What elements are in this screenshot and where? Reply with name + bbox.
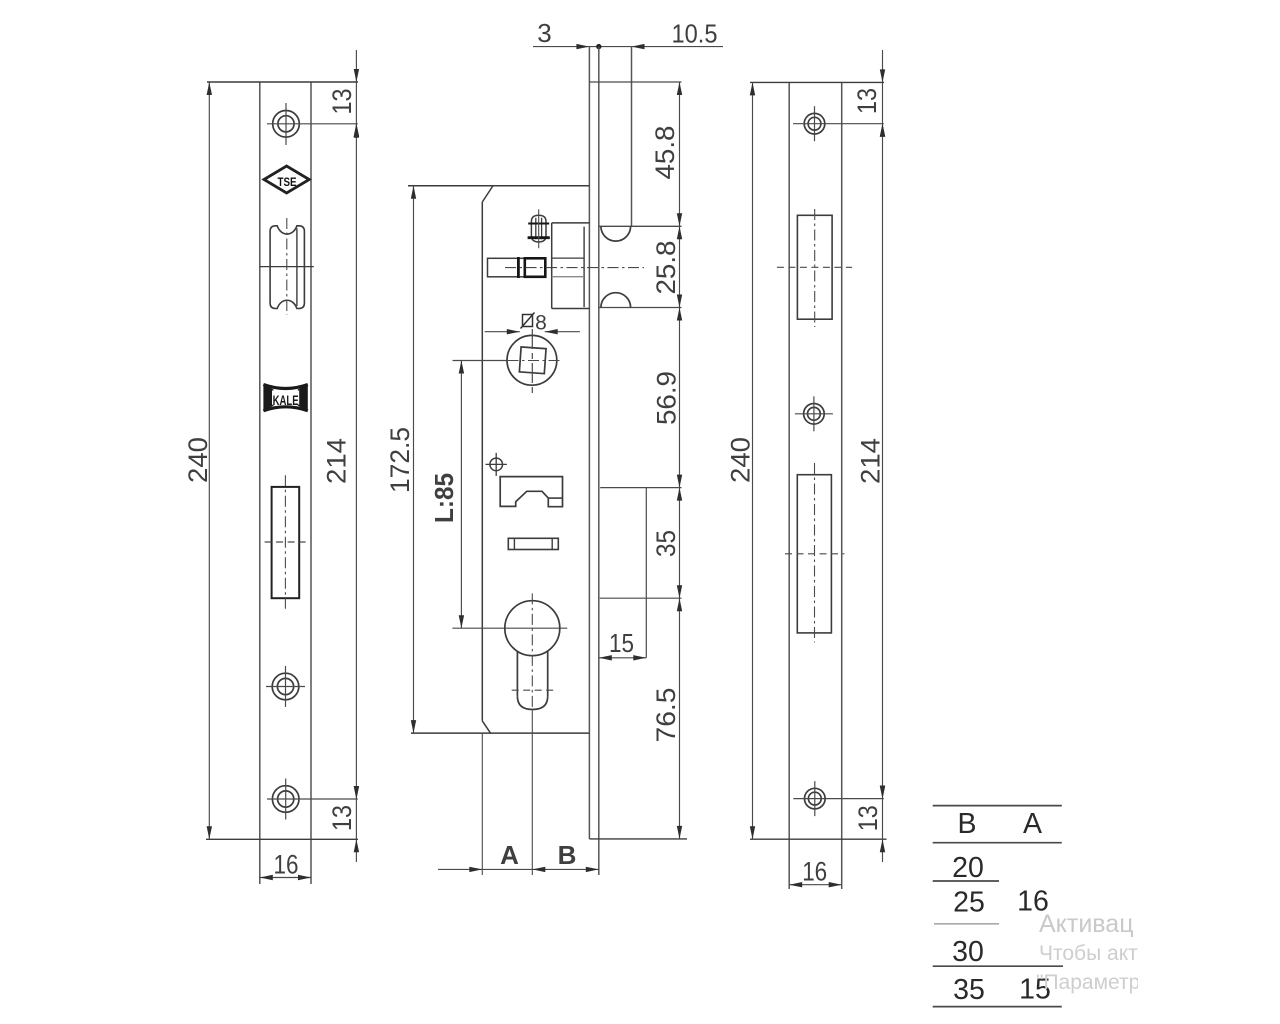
svg-text:35: 35 <box>953 974 985 1006</box>
svg-text:76.5: 76.5 <box>651 688 681 743</box>
svg-text:25: 25 <box>953 887 985 919</box>
svg-text:240: 240 <box>183 437 213 483</box>
svg-text:13: 13 <box>853 805 883 831</box>
svg-text:30: 30 <box>952 936 984 968</box>
svg-text:240: 240 <box>726 437 756 483</box>
svg-text:16: 16 <box>802 856 827 886</box>
svg-text:13: 13 <box>852 88 882 114</box>
svg-text:KALE: KALE <box>273 393 299 408</box>
svg-text:10.5: 10.5 <box>672 18 718 48</box>
svg-text:35: 35 <box>651 530 681 557</box>
svg-text:214: 214 <box>322 438 352 484</box>
svg-text:15: 15 <box>609 628 634 658</box>
svg-text:L:85: L:85 <box>429 473 459 523</box>
svg-text:13: 13 <box>327 805 357 831</box>
svg-text:45.8: 45.8 <box>650 126 680 180</box>
svg-text:172.5: 172.5 <box>385 427 415 493</box>
svg-text:3: 3 <box>537 18 551 48</box>
svg-text:13: 13 <box>327 89 357 115</box>
svg-text:TSE: TSE <box>278 177 297 189</box>
svg-text:25.8: 25.8 <box>651 241 681 295</box>
svg-text:16: 16 <box>274 849 299 879</box>
svg-text:A: A <box>500 840 519 870</box>
svg-text:8: 8 <box>535 311 547 334</box>
svg-text:B: B <box>558 840 577 870</box>
svg-text:56.9: 56.9 <box>652 371 682 425</box>
svg-text:20: 20 <box>952 852 984 884</box>
svg-text:A: A <box>1023 808 1042 840</box>
svg-text:214: 214 <box>856 438 886 484</box>
svg-text:B: B <box>957 808 976 840</box>
